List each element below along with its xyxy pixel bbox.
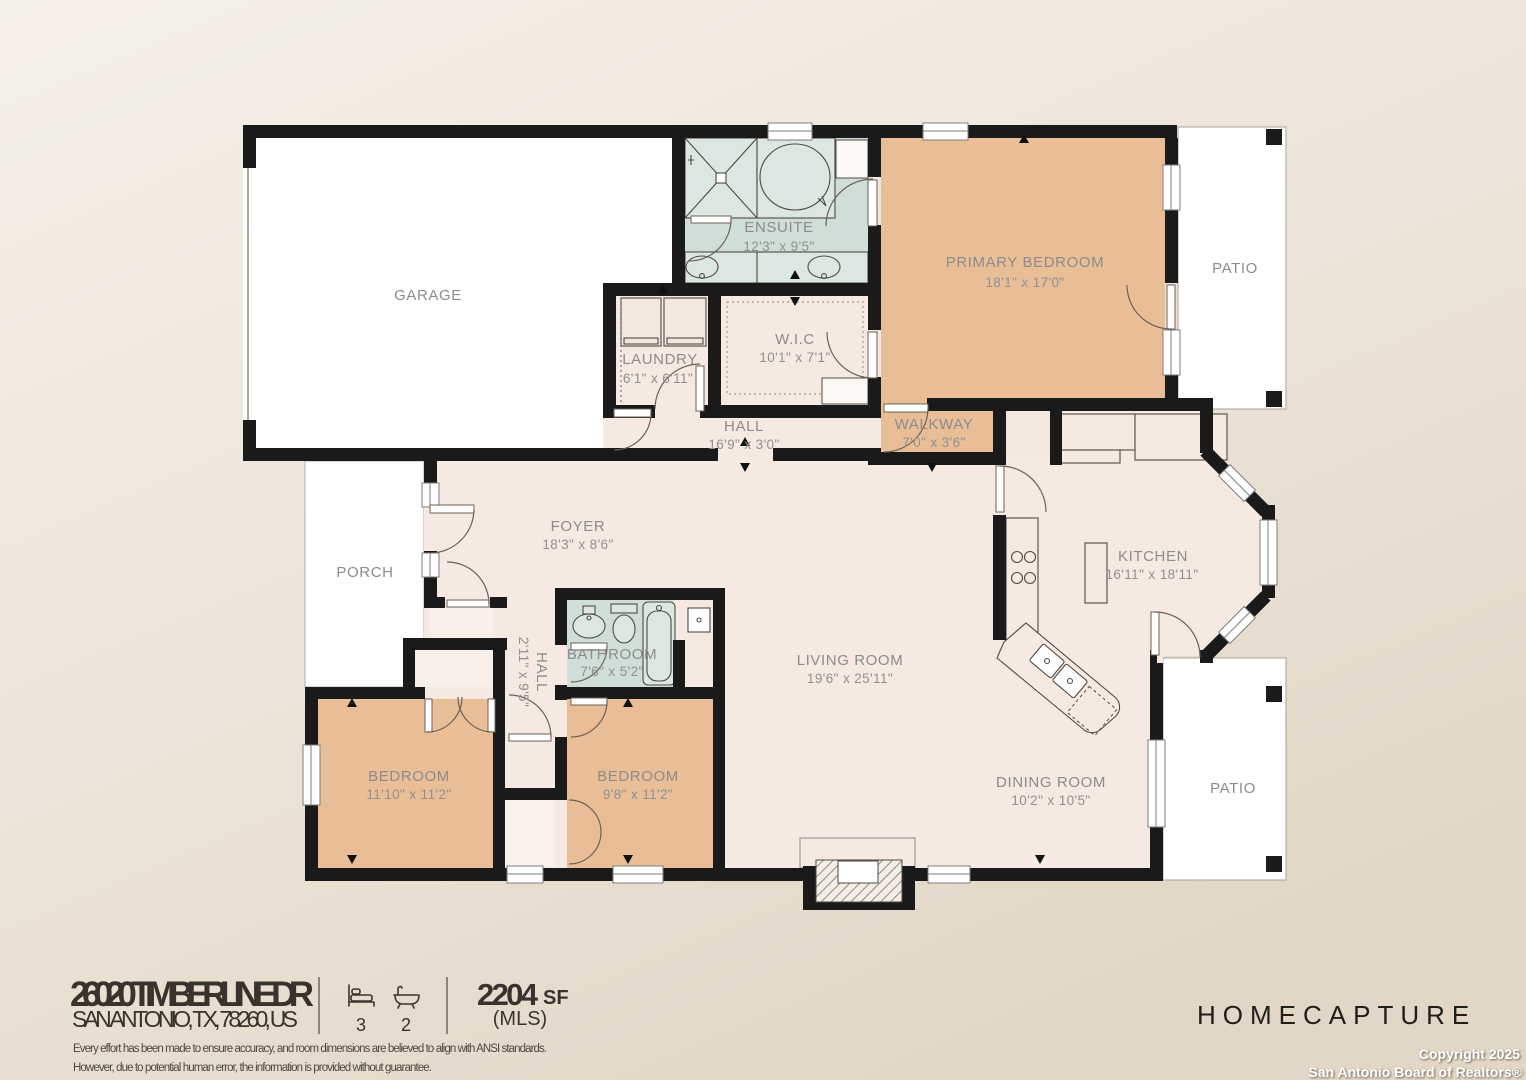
floor-plan-canvas: GARAGE ENSUITE 12'3" x 9'5" PRIMARY BEDR… (0, 0, 1526, 1080)
room-dims-walkway: 7'0" x 3'6" (902, 435, 965, 450)
room-dims-wic: 10'1" x 7'1" (759, 350, 830, 365)
room-label-foyer: FOYER (551, 518, 606, 535)
beds-count: 3 (356, 1015, 366, 1035)
floor-plan-page: GARAGE ENSUITE 12'3" x 9'5" PRIMARY BEDR… (0, 0, 1526, 1080)
room-label-bedroom-left: BEDROOM (368, 768, 450, 785)
svg-text:2'11" x 9'5": 2'11" x 9'5" (516, 637, 531, 707)
room-label-kitchen: KITCHEN (1118, 548, 1188, 565)
footer-divider (318, 977, 320, 1034)
kitchen-island (1085, 543, 1107, 603)
patio-post (1266, 391, 1282, 407)
room-dims-primary-bedroom: 18'1" x 17'0" (985, 275, 1064, 290)
room-label-patio-bottom: PATIO (1210, 780, 1256, 797)
room-label-dining-room: DINING ROOM (996, 774, 1106, 791)
address-line2: SAN ANTONIO, TX, 78260, US (72, 1006, 298, 1032)
room-label-porch: PORCH (336, 564, 393, 581)
room-label-bathroom: BATHROOM (567, 646, 657, 663)
double-vanity-icon (685, 252, 868, 283)
room-label-ensuite: ENSUITE (744, 219, 813, 236)
room-label-garage: GARAGE (394, 287, 462, 304)
patio-post (1266, 686, 1282, 702)
utility-sink-icon (688, 608, 710, 632)
patio-post (1266, 129, 1282, 145)
copyright-line2: San Antonio Board of Realtors® (1308, 1064, 1522, 1080)
brand-logo: HOMECAPTURE (1197, 1000, 1476, 1030)
toilet-icon (611, 604, 637, 643)
room-dims-ensuite: 12'3" x 9'5" (743, 239, 814, 254)
room-dims-living-room: 19'6" x 25'11" (807, 671, 893, 686)
room-label-bedroom-middle: BEDROOM (597, 768, 679, 785)
footer-divider (446, 977, 448, 1034)
shower-icon (685, 138, 757, 218)
room-dims-laundry: 6'1" x 6'11" (623, 371, 693, 386)
front-door (430, 505, 474, 513)
room-dims-bedroom-left: 11'10" x 11'2" (366, 787, 451, 802)
room-label-living-room: LIVING ROOM (797, 652, 904, 669)
disclaimer-line2: However, due to potential human error, t… (73, 1062, 432, 1074)
area-unit: SF (543, 987, 569, 1009)
area-source: (MLS) (493, 1008, 547, 1030)
room-dims-hall: 16'9" x 3'0" (708, 437, 779, 452)
room-label-primary-bedroom: PRIMARY BEDROOM (946, 254, 1104, 271)
room-dims-kitchen: 16'11" x 18'11" (1105, 567, 1198, 582)
room-label-patio-top: PATIO (1212, 260, 1258, 277)
room-label-wic: W.I.C (775, 331, 815, 348)
disclaimer-line1: Every effort has been made to ensure acc… (73, 1043, 547, 1055)
room-label-hall: HALL (724, 418, 764, 435)
svg-text:HALL: HALL (533, 652, 550, 692)
linen-closet (836, 140, 868, 178)
room-label-laundry: LAUNDRY (622, 351, 698, 368)
room-dims-bedroom-middle: 9'8" x 11'2" (603, 787, 673, 802)
fireplace-icon (800, 838, 915, 910)
tub-icon (643, 602, 675, 685)
room-dims-dining-room: 10'2" x 10'5" (1011, 793, 1090, 808)
baths-count: 2 (401, 1015, 411, 1035)
room-dims-foyer: 18'3" x 8'6" (542, 537, 613, 552)
room-label-walkway: WALKWAY (895, 416, 974, 433)
copyright-line1: Copyright 2025 (1419, 1046, 1520, 1062)
bathtub-icon (757, 138, 835, 218)
wic-builtin (822, 378, 868, 404)
patio-post (1266, 856, 1282, 872)
room-dims-bathroom: 7'6" x 5'2" (580, 664, 643, 679)
area-value: 2204 (477, 977, 539, 1012)
